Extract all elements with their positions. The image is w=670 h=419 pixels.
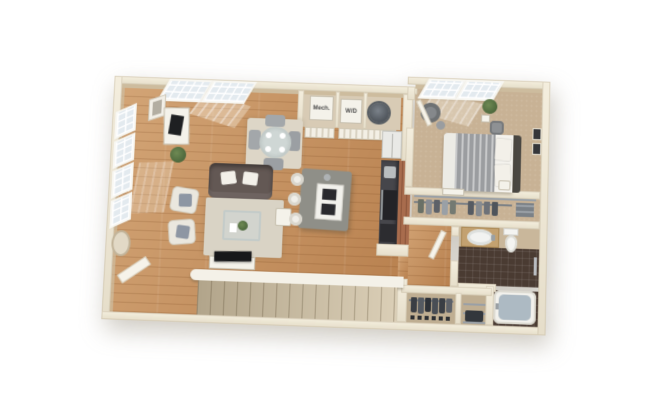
bathroom-sink: [467, 229, 493, 246]
hanging-clothes-item: [468, 201, 474, 215]
hanging-clothes-item: [426, 199, 432, 214]
folded-blanket: [442, 133, 456, 191]
bathroom-west-wall-upper: [451, 226, 459, 236]
headboard: [512, 135, 521, 193]
refrigerator: [381, 131, 402, 159]
closet-folded-items: [516, 203, 534, 218]
mech-appliance-box: Mech.: [309, 96, 334, 121]
lower-cabinet: [380, 224, 397, 243]
hanging-coat-item: [425, 298, 431, 312]
bathtub: [493, 290, 536, 325]
hanging-coat-item: [418, 297, 425, 313]
hanging-coat-item: [432, 298, 439, 314]
hanging-clothes-item: [492, 202, 498, 216]
washer-dryer-box: W/D: [340, 99, 363, 124]
laundry-hamper: [490, 121, 504, 135]
hanging-clothes-item: [418, 199, 424, 213]
bed-bench: [442, 188, 464, 196]
tub-water: [498, 294, 531, 320]
hanging-coat-item: [411, 297, 418, 312]
kitchen-counter-run: [379, 160, 400, 244]
staircase-treads: [196, 280, 397, 322]
bathroom-tile-floor: [458, 247, 539, 288]
towel-bar: [534, 257, 537, 275]
kitchen-wall-end-cap: [376, 244, 408, 257]
suitcase: [465, 310, 483, 322]
television: [214, 251, 251, 261]
hanging-clothes-item: [434, 200, 440, 213]
shelf-closet-shelves: [463, 297, 486, 324]
hanging-clothes-item: [476, 201, 482, 216]
wall-art-bedroom-1: [532, 128, 541, 140]
coffee-table: [222, 210, 261, 241]
bottom-closet-divider: [455, 293, 462, 325]
wall-art-bedroom-2: [532, 143, 541, 155]
floorplan-image: Mech. W/D: [0, 0, 670, 419]
planter-box: [481, 114, 490, 122]
mech-label: Mech.: [313, 105, 330, 111]
utility-closet-bifold-doors-left: [304, 127, 334, 139]
nightstand: [498, 180, 510, 190]
armchair-2: [168, 219, 196, 246]
tub-faucet: [496, 303, 499, 309]
dining-chair-north: [265, 115, 285, 127]
sink-faucet: [491, 235, 495, 241]
armchair-1: [169, 185, 200, 214]
hanging-clothes-item: [442, 200, 448, 215]
hanging-clothes-item: [450, 200, 456, 214]
hanging-coat-item: [439, 298, 445, 313]
hanging-clothes-item: [484, 202, 490, 215]
kitchen-sink: [384, 166, 396, 178]
range-oven: [380, 190, 397, 220]
floorplan-scene: Mech. W/D: [101, 66, 560, 336]
sofa: [208, 163, 273, 200]
kitchen-island: [298, 168, 352, 231]
washer-dryer-label: W/D: [345, 108, 357, 114]
hanging-coat-item: [446, 298, 452, 312]
bedroom-west-wall-upper: [407, 86, 415, 100]
